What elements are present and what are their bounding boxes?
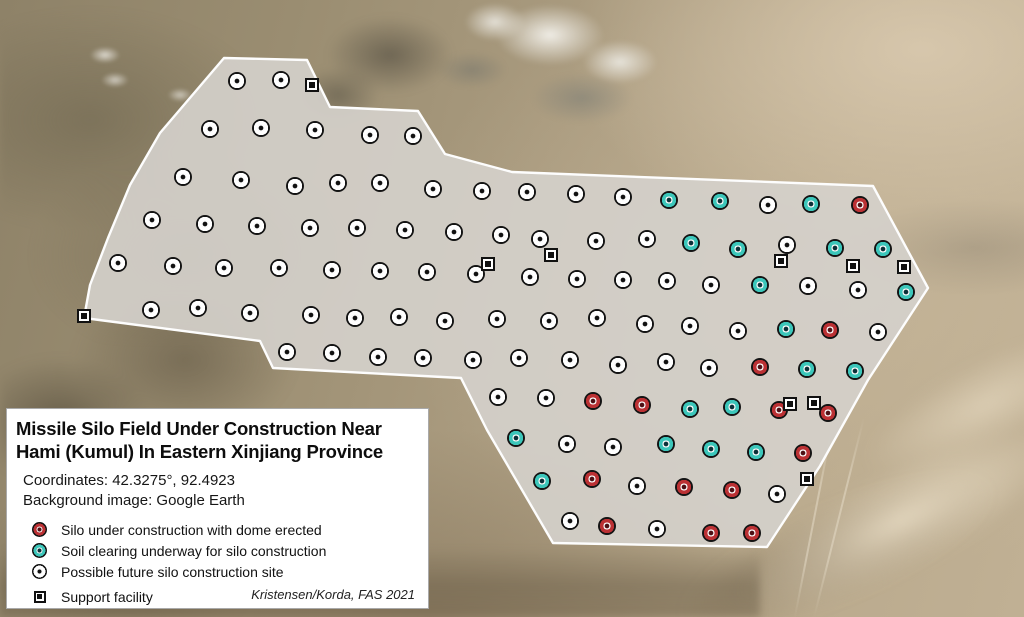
silo-marker-dome	[702, 524, 720, 542]
silo-marker-future	[252, 119, 270, 137]
square-center-dot	[850, 263, 855, 268]
silo-marker-future	[301, 219, 319, 237]
silo-marker-future	[702, 276, 720, 294]
legend-title-line2: Hami (Kumul) In Eastern Xinjiang Provinc…	[16, 440, 420, 463]
silo-marker-future	[628, 477, 646, 495]
silo-marker-future	[445, 223, 463, 241]
silo-marker-future	[700, 359, 718, 377]
silo-marker-future	[174, 168, 192, 186]
silo-marker-future	[306, 121, 324, 139]
silo-marker-clearing	[777, 320, 795, 338]
silo-marker-clearing	[660, 191, 678, 209]
silo-marker-future	[558, 435, 576, 453]
silo-marker-future	[418, 263, 436, 281]
silo-marker-future	[778, 236, 796, 254]
silo-marker-clearing	[657, 435, 675, 453]
silo-marker-future	[518, 183, 536, 201]
silo-marker-future	[414, 349, 432, 367]
silo-marker-future	[587, 232, 605, 250]
silo-marker-future	[604, 438, 622, 456]
silo-marker-future	[436, 312, 454, 330]
silo-marker-future	[241, 304, 259, 322]
support-facility-marker	[783, 397, 797, 411]
square-center-dot	[485, 261, 490, 266]
silo-marker-dome	[821, 321, 839, 339]
silo-marker-dome	[794, 444, 812, 462]
silo-marker-future	[568, 270, 586, 288]
silo-marker-future	[648, 520, 666, 538]
silo-marker-future	[109, 254, 127, 272]
legend-title-line1: Missile Silo Field Under Construction Ne…	[16, 417, 420, 440]
silo-marker-future	[540, 312, 558, 330]
silo-marker-future	[537, 389, 555, 407]
square-center-dot	[548, 252, 553, 257]
silo-marker-future	[561, 512, 579, 530]
silo-marker-clearing	[798, 360, 816, 378]
silo-marker-dome	[675, 478, 693, 496]
silo-marker-dome	[584, 392, 602, 410]
silo-marker-future	[609, 356, 627, 374]
silo-marker-future	[215, 259, 233, 277]
silo-marker-future	[228, 72, 246, 90]
square-center-dot	[787, 401, 792, 406]
silo-marker-future	[371, 262, 389, 280]
silo-marker-future	[489, 388, 507, 406]
silo-marker-future	[369, 348, 387, 366]
silo-marker-future	[142, 301, 160, 319]
legend-swatch-support-icon	[30, 591, 49, 603]
silo-marker-dome	[723, 481, 741, 499]
silo-marker-future	[201, 120, 219, 138]
silo-marker-clearing	[723, 398, 741, 416]
legend-swatch-dome-icon	[30, 522, 49, 537]
coordinates-line: Coordinates: 42.3275°, 92.4923	[23, 471, 428, 491]
silo-marker-future	[371, 174, 389, 192]
support-facility-marker	[800, 472, 814, 486]
silo-marker-future	[681, 317, 699, 335]
square-center-dot	[901, 264, 906, 269]
legend-swatch-clearing-icon	[30, 543, 49, 558]
silo-marker-future	[323, 344, 341, 362]
support-facility-marker	[846, 259, 860, 273]
legend-panel: Missile Silo Field Under Construction Ne…	[6, 408, 429, 609]
silo-marker-future	[657, 353, 675, 371]
support-facility-marker	[305, 78, 319, 92]
silo-marker-dome	[743, 524, 761, 542]
legend-item-label: Silo under construction with dome erecte…	[61, 522, 322, 538]
silo-marker-future	[588, 309, 606, 327]
square-center-dot	[309, 82, 314, 87]
silo-marker-clearing	[802, 195, 820, 213]
silo-marker-future	[286, 177, 304, 195]
silo-marker-future	[404, 127, 422, 145]
silo-marker-future	[473, 182, 491, 200]
square-center-dot	[778, 258, 783, 263]
legend-item-clearing: Soil clearing underway for silo construc…	[7, 540, 428, 561]
silo-marker-future	[614, 271, 632, 289]
silo-marker-clearing	[747, 443, 765, 461]
silo-marker-dome	[819, 404, 837, 422]
silo-marker-clearing	[897, 283, 915, 301]
silo-marker-future	[270, 259, 288, 277]
silo-marker-future	[768, 485, 786, 503]
silo-marker-future	[561, 351, 579, 369]
silo-marker-future	[510, 349, 528, 367]
silo-marker-dome	[751, 358, 769, 376]
silo-marker-clearing	[751, 276, 769, 294]
silo-marker-future	[759, 196, 777, 214]
dome-marker-icon	[32, 522, 47, 537]
silo-marker-dome	[633, 396, 651, 414]
support-facility-marker	[77, 309, 91, 323]
legend-item-future: Possible future silo construction site	[7, 561, 428, 582]
silo-marker-clearing	[729, 240, 747, 258]
silo-marker-future	[869, 323, 887, 341]
silo-marker-future	[521, 268, 539, 286]
legend-title: Missile Silo Field Under Construction Ne…	[16, 417, 420, 463]
attribution: Kristensen/Korda, FAS 2021	[251, 587, 415, 602]
legend-swatch-future-icon	[30, 564, 49, 579]
square-center-dot	[811, 400, 816, 405]
silo-marker-future	[849, 281, 867, 299]
silo-marker-future	[531, 230, 549, 248]
silo-marker-future	[189, 299, 207, 317]
silo-marker-future	[729, 322, 747, 340]
silo-marker-clearing	[533, 472, 551, 490]
background-credit-line: Background image: Google Earth	[23, 491, 428, 511]
legend-item-label: Possible future silo construction site	[61, 564, 284, 580]
silo-marker-future	[396, 221, 414, 239]
silo-marker-clearing	[681, 400, 699, 418]
silo-marker-future	[614, 188, 632, 206]
silo-marker-clearing	[507, 429, 525, 447]
silo-marker-future	[390, 308, 408, 326]
support-facility-marker	[807, 396, 821, 410]
silo-marker-future	[567, 185, 585, 203]
silo-marker-future	[278, 343, 296, 361]
support-facility-marker	[544, 248, 558, 262]
silo-marker-dome	[583, 470, 601, 488]
support-facility-marker	[774, 254, 788, 268]
silo-marker-future	[329, 174, 347, 192]
square-center-dot	[804, 476, 809, 481]
silo-marker-future	[248, 217, 266, 235]
silo-marker-future	[799, 277, 817, 295]
support-facility-marker	[481, 257, 495, 271]
silo-marker-clearing	[702, 440, 720, 458]
silo-marker-future	[492, 226, 510, 244]
silo-marker-future	[196, 215, 214, 233]
silo-marker-future	[272, 71, 290, 89]
legend-item-dome: Silo under construction with dome erecte…	[7, 519, 428, 540]
silo-marker-future	[232, 171, 250, 189]
silo-marker-future	[424, 180, 442, 198]
silo-marker-dome	[598, 517, 616, 535]
silo-marker-future	[164, 257, 182, 275]
silo-marker-future	[464, 351, 482, 369]
silo-marker-future	[488, 310, 506, 328]
legend-item-label: Support facility	[61, 589, 153, 605]
silo-marker-clearing	[874, 240, 892, 258]
silo-marker-future	[346, 309, 364, 327]
support-facility-marker	[897, 260, 911, 274]
silo-marker-future	[658, 272, 676, 290]
square-center-dot	[81, 313, 86, 318]
silo-marker-future	[302, 306, 320, 324]
silo-marker-clearing	[826, 239, 844, 257]
silo-marker-future	[361, 126, 379, 144]
future-marker-icon	[32, 564, 47, 579]
silo-marker-clearing	[682, 234, 700, 252]
silo-marker-future	[143, 211, 161, 229]
silo-marker-future	[348, 219, 366, 237]
silo-marker-future	[638, 230, 656, 248]
clearing-marker-icon	[32, 543, 47, 558]
silo-marker-clearing	[711, 192, 729, 210]
legend-item-label: Soil clearing underway for silo construc…	[61, 543, 326, 559]
square-center-dot	[37, 594, 42, 599]
silo-marker-dome	[851, 196, 869, 214]
silo-marker-future	[323, 261, 341, 279]
map-canvas: Missile Silo Field Under Construction Ne…	[0, 0, 1024, 617]
silo-marker-future	[636, 315, 654, 333]
silo-marker-clearing	[846, 362, 864, 380]
support-marker-icon	[34, 591, 46, 603]
